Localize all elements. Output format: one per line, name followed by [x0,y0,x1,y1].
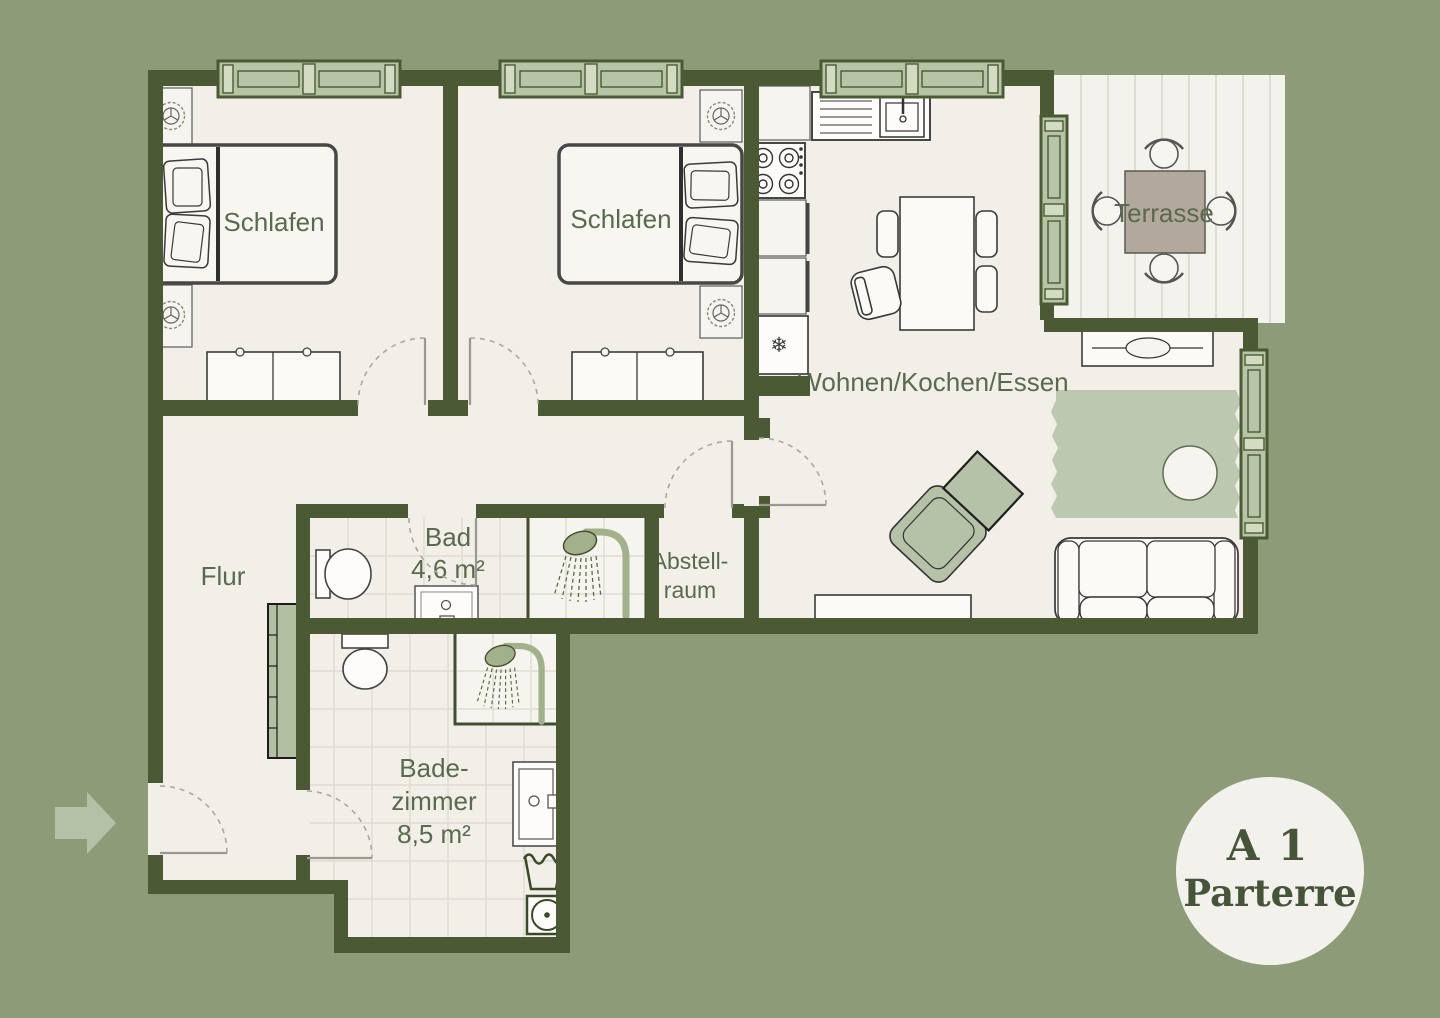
bath-large-area: 8,5 m² [397,819,471,849]
storage-label-1: Abstell- [652,548,729,574]
snowflake-icon: ❄ [770,334,788,357]
pillow [163,159,211,214]
badge-floor: Parterre [1183,871,1356,915]
dresser [572,348,703,407]
pillow [164,214,211,268]
entrance-arrow-icon [55,792,116,854]
chair [877,211,898,257]
dining-table [900,197,974,330]
living-room-label: Wohnen/Kochen/Essen [797,367,1068,397]
unit-badge: A 1 Parterre [1176,777,1364,965]
terrace-label: Terrasse [1114,198,1214,228]
floor-plan-page: Schlafen Schlafen [0,0,1440,1018]
toilet [342,634,388,689]
window [1041,116,1067,304]
floor-plan: Schlafen Schlafen [0,0,1440,1018]
plant-icon [708,103,735,130]
chair [976,266,997,312]
plant-icon [708,300,735,327]
window [1241,350,1267,538]
window [500,61,682,97]
pillow [684,217,739,265]
shower-cell [455,632,565,724]
bath-small-label: Bad [425,522,471,552]
coffee-table [1163,446,1217,500]
bedroom-1-label: Schlafen [223,207,324,237]
window [821,61,1003,97]
chair [976,211,997,257]
window [218,61,400,97]
bedroom-2-label: Schlafen [570,204,671,234]
sideboard-tv [1082,331,1213,366]
hall-label: Flur [201,561,246,591]
rug [1051,390,1241,518]
wardrobe [268,604,300,758]
badge-unit: A 1 [1226,821,1309,870]
toilet [316,549,371,599]
storage-label-2: raum [664,577,716,603]
sofa [1055,538,1238,625]
washbasin [513,762,563,846]
bath-large-label-2: zimmer [391,786,477,816]
dresser [207,348,340,407]
bath-large-label-1: Bade- [399,753,468,783]
pillow [684,162,738,209]
background-patch [296,894,336,954]
shower-cell [528,516,646,620]
